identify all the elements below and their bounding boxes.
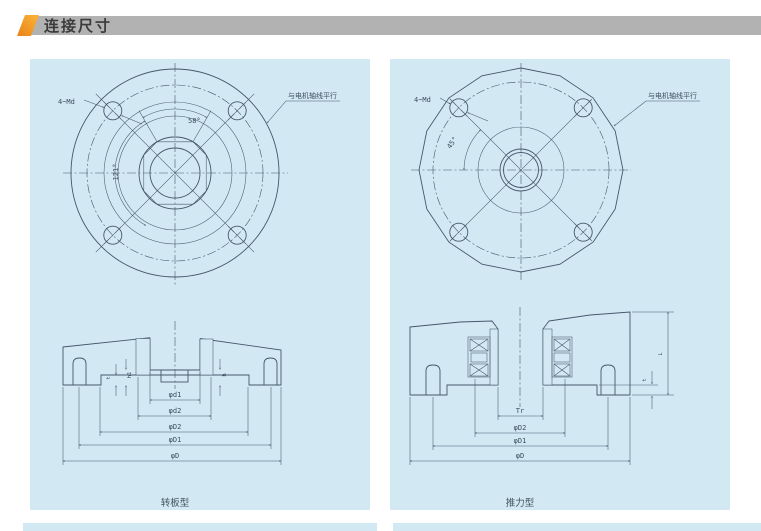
- small-dim-label: h1: [127, 372, 133, 379]
- left-flange-top-view: 58° 121° 4~Md 与电机轴线平行: [58, 63, 340, 286]
- dim-label: φD1: [169, 436, 182, 444]
- dim-label: φd1: [169, 391, 182, 399]
- page: 连接尺寸: [0, 0, 761, 531]
- thrust-bearing-right: [552, 337, 572, 377]
- accent-wedge: [17, 15, 39, 36]
- bolt-callout-label: 4~Md: [58, 98, 75, 106]
- small-dim-label: L: [658, 352, 664, 356]
- right-flange-top-view: 45° 4~Md 与电机轴线平行: [411, 63, 700, 281]
- next-section-strip-left: [23, 523, 377, 531]
- dim-label: φD1: [514, 437, 527, 445]
- section-body-right: [543, 312, 630, 395]
- header-accent-icon: [13, 12, 43, 38]
- screw-hole-left: [426, 365, 440, 395]
- right-drawing: 45° 4~Md 与电机轴线平行: [390, 59, 730, 510]
- small-dim-label: h: [222, 373, 228, 376]
- axis-note-label: 与电机轴线平行: [288, 91, 337, 100]
- drive-key-plate: [161, 370, 188, 382]
- axis-note-leader: [267, 101, 340, 123]
- angle-label-top: 58°: [188, 117, 201, 125]
- dim-label: φD: [171, 452, 179, 460]
- next-section-strip-right: [393, 523, 761, 531]
- bolt-callout-label: 4~Md: [414, 96, 431, 104]
- right-panel-caption: 推力型: [506, 497, 535, 509]
- left-drawing: 58° 121° 4~Md 与电机轴线平行: [30, 59, 370, 510]
- dim-label: φD2: [169, 423, 182, 431]
- thrust-bearing-left: [468, 337, 490, 377]
- dim-label: Tr: [516, 407, 524, 415]
- small-dim-label: t: [106, 376, 112, 379]
- section-header-bar: 连接尺寸: [30, 16, 761, 35]
- right-section-view: Tr φD2 φD1 φD L: [410, 307, 674, 465]
- small-dim-label: t: [642, 378, 648, 381]
- dim-label: φD: [516, 452, 524, 460]
- right-section-dimensions: Tr φD2 φD1 φD L: [410, 312, 674, 465]
- right-panel: 45° 4~Md 与电机轴线平行: [390, 59, 730, 510]
- left-panel-caption: 转板型: [161, 497, 190, 509]
- axis-note-leader: [614, 101, 700, 126]
- dim-label: φD2: [514, 424, 527, 432]
- left-panel: 58° 121° 4~Md 与电机轴线平行: [30, 59, 370, 510]
- dim-label: φd2: [169, 407, 182, 415]
- screw-hole-left: [73, 358, 86, 385]
- left-section-view: φd1 φd2 φD2 φD1 φD t: [63, 321, 281, 465]
- angle-label-side: 121°: [112, 164, 120, 181]
- angle-label-side: 45°: [445, 135, 459, 150]
- axis-note-label: 与电机轴线平行: [648, 91, 697, 100]
- screw-hole-right: [264, 358, 277, 385]
- section-body-left: [410, 321, 498, 395]
- screw-hole-right: [601, 365, 615, 395]
